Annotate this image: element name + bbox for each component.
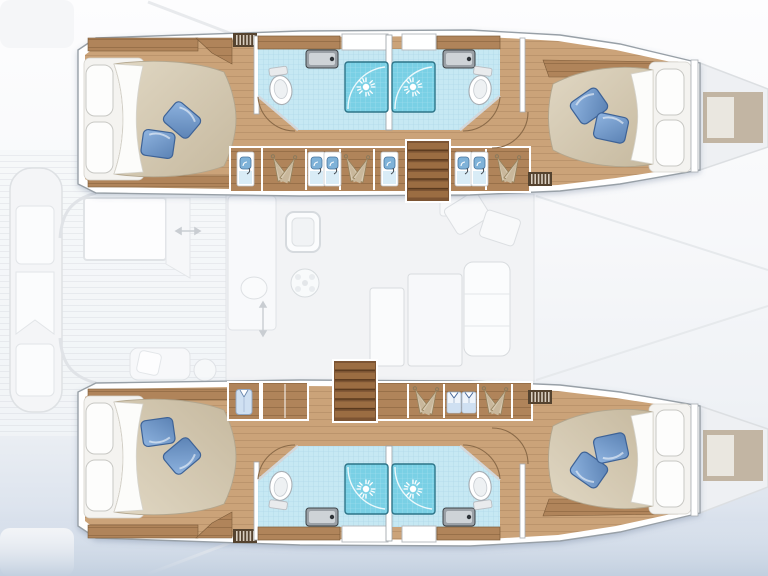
washbasin-icon	[308, 152, 325, 186]
port-aft-bed	[84, 58, 236, 180]
starboard-aft-vent-grille-icon	[233, 529, 257, 543]
starboard-corridor-lockers	[228, 382, 532, 420]
washbasin-icon	[324, 152, 341, 186]
starboard-hull	[78, 360, 700, 546]
folded-shirt-icon	[462, 392, 476, 413]
catamaran-floorplan	[0, 0, 768, 576]
starboard-fwd-vent-grille-icon	[528, 390, 552, 404]
port-corridor-lockers	[230, 147, 530, 192]
washbasin-icon	[471, 152, 488, 186]
floorplan-canvas	[0, 0, 768, 576]
hanging-shirt-icon	[236, 386, 252, 415]
saloon-faded	[226, 190, 534, 382]
port-fwd-bed	[549, 62, 692, 172]
port-bow-deck	[700, 63, 768, 170]
starboard-aft-bed	[84, 396, 236, 518]
washbasin-icon	[381, 152, 398, 186]
folded-shirt-icon	[447, 392, 461, 413]
starboard-fwd-bed	[549, 404, 692, 514]
starboard-companionway-stairs	[333, 360, 377, 422]
washbasin-icon	[237, 152, 254, 186]
port-aft-vent-grille-icon	[233, 33, 257, 47]
port-hull	[78, 30, 700, 202]
starboard-bathrooms	[258, 445, 500, 542]
starboard-bow-deck	[700, 406, 768, 513]
port-bathrooms	[258, 34, 500, 131]
washbasin-icon	[455, 152, 472, 186]
port-fwd-vent-grille-icon	[528, 172, 552, 186]
port-companionway-stairs	[406, 140, 450, 202]
